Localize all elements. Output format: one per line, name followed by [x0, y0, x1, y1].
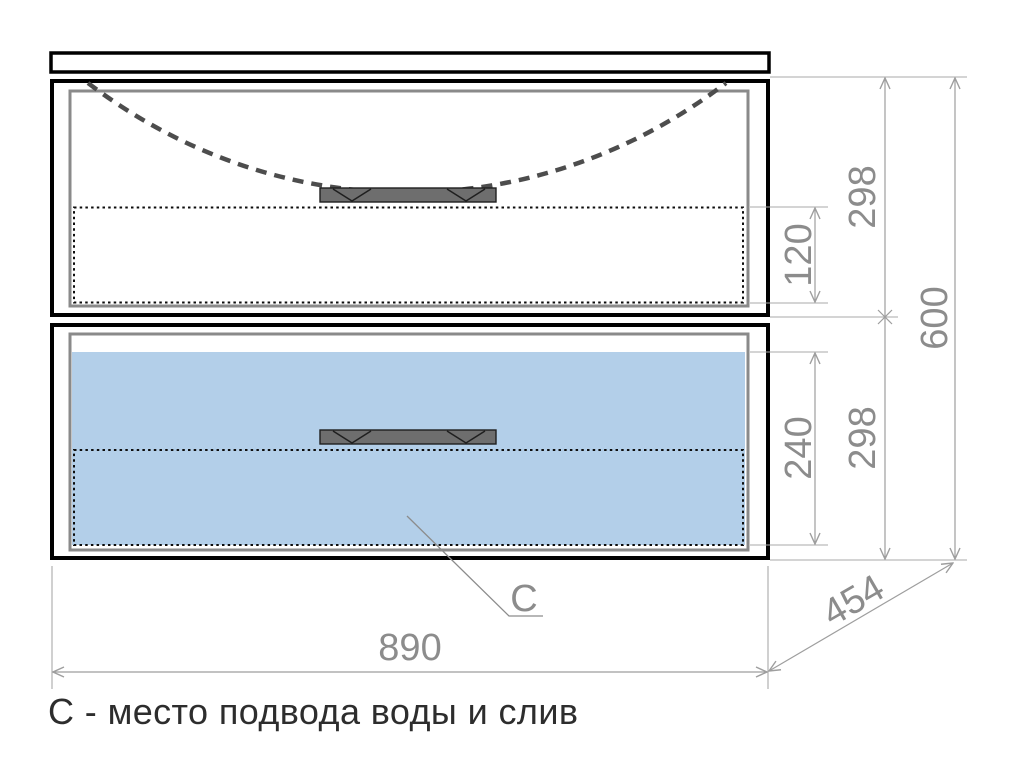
bottom-drawer — [52, 325, 768, 558]
bottom-drawer-handle — [320, 430, 496, 444]
countertop — [51, 53, 769, 72]
dim-label-890: 890 — [378, 627, 441, 669]
dim-label-298-bottom: 298 — [842, 406, 884, 469]
dim-bottom-drawer-front-height: 298 — [842, 310, 892, 559]
bottom-handle-bar — [320, 430, 496, 444]
technical-drawing-page: 120 240 298 298 600 — [0, 0, 1024, 768]
caption-text: С - место подвода воды и слив — [48, 691, 578, 733]
marker-label: С — [510, 578, 537, 620]
bottom-drawer-highlight-area — [72, 352, 745, 545]
top-drawer — [52, 81, 768, 315]
dim-label-120: 120 — [778, 223, 820, 286]
dim-label-600: 600 — [914, 286, 956, 349]
dim-label-454: 454 — [816, 567, 892, 635]
dim-overall-depth: 454 — [769, 563, 953, 671]
dim-top-drawer-front-height: 298 — [842, 78, 885, 317]
dim-top-drawer-inner-depth: 120 — [778, 208, 820, 302]
top-handle-bar — [320, 188, 496, 202]
dim-overall-height: 600 — [914, 78, 956, 559]
dim-bottom-drawer-inner-depth: 240 — [778, 353, 820, 544]
top-drawer-handle — [320, 188, 496, 202]
dim-overall-width: 890 — [53, 627, 767, 672]
cabinet-outline — [51, 53, 769, 558]
dim-label-240: 240 — [778, 416, 820, 479]
vanity-front-view-drawing: 120 240 298 298 600 — [0, 0, 1024, 768]
dim-label-298-top: 298 — [842, 165, 884, 228]
